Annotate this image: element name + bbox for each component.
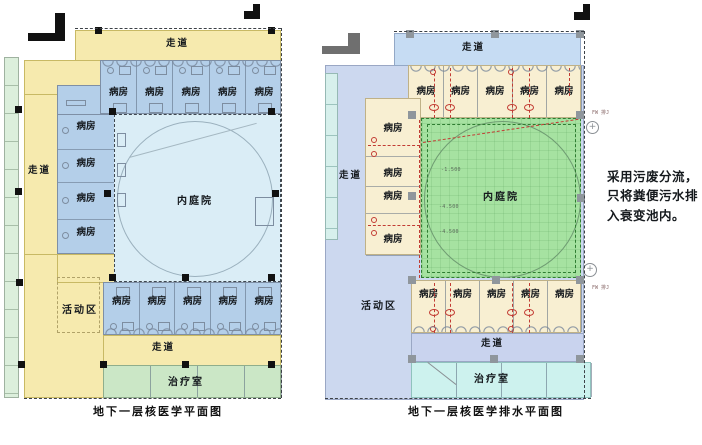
room-label: 病房	[183, 298, 202, 308]
wall-corner-mark	[322, 46, 360, 54]
column-mark	[15, 188, 22, 195]
column-mark	[272, 190, 279, 197]
toilet-icon	[524, 309, 534, 316]
toilet-icon	[445, 309, 455, 316]
column-mark	[408, 355, 416, 363]
service-room	[57, 85, 101, 115]
bed-icon	[222, 103, 236, 113]
corridor-bottom	[103, 335, 281, 366]
room-label: 病房	[451, 88, 470, 98]
bed-icon	[187, 287, 201, 297]
treatment-partition	[547, 363, 592, 397]
corridor-left-label: 走道	[28, 167, 51, 177]
elevation-label: -4.500	[439, 229, 459, 235]
planter-icon	[117, 133, 126, 147]
outer-wall	[325, 398, 591, 399]
toilet-icon	[507, 104, 517, 111]
room-label: 病房	[419, 291, 438, 301]
bath-niche-scallops	[104, 327, 280, 334]
stage-icon	[255, 197, 274, 226]
ward-room: 病房	[58, 150, 114, 183]
toilet-icon	[107, 67, 114, 74]
ward-room: 病房	[246, 61, 282, 113]
toilet-icon	[62, 127, 69, 134]
left-plan-caption: 地下一层核医学平面图	[93, 403, 223, 419]
room-label: 病房	[383, 236, 402, 246]
toilet-icon	[371, 151, 377, 157]
toilet-icon	[371, 230, 377, 236]
room-label: 病房	[109, 89, 128, 99]
riser-label: FW 排J	[592, 109, 609, 116]
wall-corner-mark	[55, 13, 65, 41]
column-mark	[268, 361, 275, 368]
room-label: 病房	[218, 298, 237, 308]
column-mark	[268, 274, 275, 281]
note-line: 采用污废分流，	[607, 168, 702, 187]
corridor-top-label: 走道	[462, 44, 485, 54]
ward-room: 病房	[137, 61, 173, 113]
ward-room: 病房	[101, 61, 137, 113]
room-label: 病房	[76, 123, 95, 133]
wall-corner-mark	[348, 33, 360, 47]
toilet-icon	[507, 309, 517, 316]
ward-room: 病房	[366, 99, 420, 157]
room-label: 病房	[254, 298, 273, 308]
room-label: 病房	[554, 88, 573, 98]
column-mark	[576, 355, 584, 363]
treatment-partition	[104, 366, 151, 397]
corridor-left-label: 走道	[339, 172, 362, 182]
column-mark	[15, 106, 22, 113]
bath-niche-scallops	[409, 66, 580, 73]
toilet-icon	[429, 309, 439, 316]
bed-icon	[223, 287, 237, 297]
drawing-canvas: 病房 病房 病房 病房	[0, 0, 702, 445]
room-label: 病房	[383, 170, 402, 180]
corridor-top	[394, 33, 581, 66]
column-mark	[408, 111, 416, 119]
drainage-note: 采用污废分流， 只将粪便污水排 入衰变池内。	[607, 168, 702, 226]
treatment-room: 治疗室	[411, 362, 591, 398]
room-label: 病房	[76, 229, 95, 239]
toilet-icon	[62, 197, 69, 204]
room-label: 病房	[383, 193, 402, 203]
column-mark	[490, 355, 498, 363]
room-label: 病房	[145, 89, 164, 99]
corridor-top-label: 走道	[166, 40, 189, 50]
ward-room: 病房	[58, 115, 114, 150]
survey-point-icon: +	[586, 121, 599, 134]
column-mark	[268, 108, 275, 115]
room-label: 病房	[76, 160, 95, 170]
outer-wall	[24, 398, 281, 399]
room-label: 病房	[218, 89, 237, 99]
elevation-label: -1.500	[441, 167, 461, 173]
toilet-icon	[216, 67, 223, 74]
column-mark	[109, 274, 116, 281]
column-mark	[100, 361, 107, 368]
ward-band-top: 病房 病房 病房 病房	[100, 60, 281, 114]
bed-icon	[152, 287, 166, 297]
activity-label: 活动区	[361, 302, 397, 312]
outer-wall	[394, 31, 584, 32]
outer-wall	[75, 28, 281, 29]
toilet-icon	[429, 104, 439, 111]
room-label: 病房	[112, 298, 131, 308]
treatment-label: 治疗室	[168, 378, 204, 388]
counter-icon	[66, 100, 86, 106]
column-mark	[16, 279, 23, 286]
column-mark	[492, 276, 500, 284]
bath-niche-scallops	[412, 325, 580, 332]
survey-point-icon: +	[583, 263, 597, 277]
bed-icon	[185, 103, 199, 113]
planter-icon	[117, 193, 126, 207]
right-plan-caption: 地下一层核医学排水平面图	[408, 403, 564, 419]
treatment-label: 治疗室	[474, 375, 510, 385]
drain-pipe	[419, 120, 420, 278]
ward-column-left: 病房 病房 病房 病房	[365, 98, 421, 255]
outer-wall	[584, 31, 585, 398]
room-label: 病房	[147, 298, 166, 308]
room-label: 病房	[485, 88, 504, 98]
column-mark	[109, 108, 116, 115]
room-label: 病房	[453, 291, 472, 301]
toilet-icon	[371, 137, 377, 143]
bed-icon	[149, 103, 163, 113]
toilet-icon	[62, 232, 69, 239]
bed-icon	[116, 287, 130, 297]
column-mark	[408, 276, 416, 284]
column-mark	[182, 361, 189, 368]
ward-room: 病房	[58, 183, 114, 220]
elevation-label: -4.500	[439, 204, 459, 210]
room-label: 病房	[383, 125, 402, 135]
courtyard: 内庭院	[114, 114, 281, 282]
toilet-icon	[445, 104, 455, 111]
room-label: 病房	[416, 88, 435, 98]
courtyard-label: 内庭院	[483, 193, 519, 203]
toilet-icon	[524, 104, 534, 111]
toilet-icon	[62, 162, 69, 169]
room-label: 病房	[254, 89, 273, 99]
wall-tick-mark	[253, 4, 260, 19]
treatment-partition	[198, 366, 245, 397]
drain-pipe	[368, 225, 420, 226]
toilet-icon	[179, 67, 186, 74]
column-mark	[104, 190, 111, 197]
activity-label: 活动区	[62, 306, 98, 316]
planter-icon	[117, 163, 126, 177]
courtyard: 内庭院 -1.500 -4.500 -4.500	[421, 118, 581, 278]
bed-icon	[258, 287, 272, 297]
corridor-bottom-label: 走道	[481, 340, 504, 350]
courtyard-label: 内庭院	[177, 197, 213, 207]
treatment-partition	[245, 366, 282, 397]
room-label: 病房	[521, 291, 540, 301]
ward-room: 病房	[547, 66, 582, 117]
column-mark	[408, 192, 416, 200]
treatment-room: 治疗室	[103, 365, 281, 398]
column-mark	[18, 361, 25, 368]
ward-column-left: 病房 病房 病房 病房	[57, 114, 115, 254]
ward-room: 病房	[210, 61, 246, 113]
room-label: 病房	[555, 291, 574, 301]
corridor-bottom-label: 走道	[152, 344, 175, 354]
toilet-icon	[371, 217, 377, 223]
riser-label: FW 排J	[592, 284, 609, 291]
drain-pipe	[368, 145, 420, 146]
room-label: 病房	[487, 291, 506, 301]
column-mark	[576, 111, 584, 119]
column-mark	[182, 274, 189, 281]
room-label: 病房	[181, 89, 200, 99]
toilet-icon	[252, 67, 259, 74]
column-mark	[576, 276, 584, 284]
room-label: 病房	[76, 195, 95, 205]
note-line: 入衰变池内。	[607, 207, 702, 226]
side-rooms-strip	[325, 73, 338, 240]
ward-room: 病房	[366, 157, 420, 187]
bath-niche-scallops	[101, 61, 280, 68]
ward-room: 病房	[58, 220, 114, 255]
note-line: 只将粪便污水排	[607, 187, 702, 206]
toilet-icon	[143, 67, 150, 74]
wall-tick-mark	[583, 4, 590, 18]
ward-room: 病房	[173, 61, 210, 113]
outer-wall	[281, 28, 282, 398]
